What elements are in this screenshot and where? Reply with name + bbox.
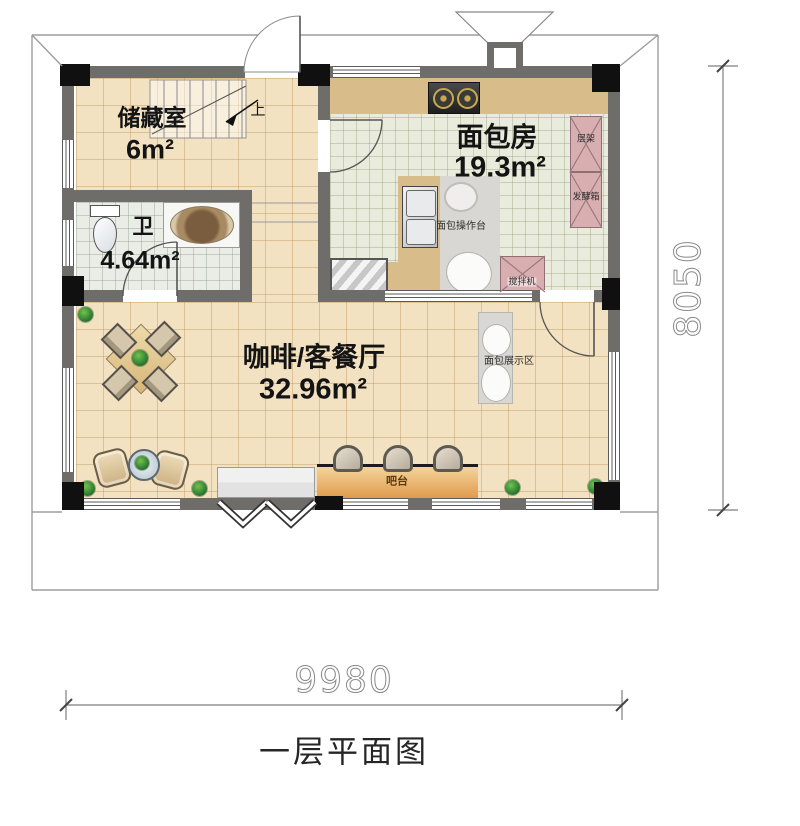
column-top-middle (298, 64, 330, 86)
door-opening-bakery-left (318, 120, 330, 172)
window-bottom-1 (84, 498, 180, 510)
wall-bakery-left-bottom (318, 172, 330, 302)
round-table-plant (135, 456, 149, 470)
room-name-bakery: 面包房 (457, 125, 538, 152)
window-left-storage (62, 140, 74, 188)
window-bottom-2 (343, 498, 408, 510)
room-area-bath: 4.64m² (100, 249, 179, 274)
window-top-bakery (333, 66, 420, 78)
bath-basin (170, 206, 234, 244)
door-opening-top-entrance (245, 66, 300, 78)
bar-stool-3 (433, 445, 463, 472)
plant-4 (505, 480, 520, 495)
plant-3 (192, 481, 207, 496)
dimension-height-label: 8050 (668, 238, 709, 338)
plan-title: 一层平面图 (259, 737, 429, 768)
toilet-tank (90, 205, 120, 217)
room-area-cafe: 32.96m² (259, 376, 367, 405)
mixer-label: 搅拌机 (507, 278, 536, 287)
window-left-cafe (62, 368, 74, 472)
display-bread-1 (482, 324, 511, 356)
column-left-middle (62, 276, 84, 306)
dimension-width-label: 9980 (294, 660, 394, 701)
door-opening-bath (123, 290, 177, 302)
wall-storage-bath-divider (62, 190, 252, 202)
wall-bakery-south-l (318, 290, 385, 302)
room-name-cafe: 咖啡/客餐厅 (243, 345, 386, 372)
wall-bath-south-r (177, 290, 252, 302)
window-bottom-4 (526, 498, 592, 510)
worktable-label: 面包操作台 (436, 222, 486, 232)
wall-bath-right (240, 190, 252, 302)
bar-label: 吧台 (386, 477, 408, 488)
proofing-box-label: 发酵箱 (572, 193, 599, 202)
bread-display-label: 面包展示区 (484, 357, 534, 367)
room-name-bath: 卫 (133, 217, 154, 238)
column-bottom-right (594, 482, 620, 510)
window-bakery-interior (385, 290, 532, 302)
stove-burner-left (433, 88, 454, 109)
bar-stool-1 (333, 445, 363, 472)
column-top-right (592, 64, 620, 92)
room-area-storage: 6m² (126, 137, 174, 164)
door-opening-bakery-cafe (540, 290, 594, 302)
column-right-middle (602, 278, 620, 310)
shelf-rack-cabinet (570, 116, 602, 172)
entry-mat (217, 467, 315, 498)
sink-bowl-bottom (406, 219, 436, 245)
table-plant (132, 350, 148, 366)
bar-stool-2 (383, 445, 413, 472)
room-area-bakery: 19.3m² (454, 154, 546, 183)
window-left-bath (62, 220, 74, 266)
window-right-cafe (608, 352, 620, 480)
stove-burner-right (457, 88, 478, 109)
column-bottom-middle (315, 496, 343, 510)
stairs-up-label: 上 (250, 103, 265, 118)
mixer-unit (500, 256, 545, 292)
sink-bowl-top (406, 190, 436, 217)
window-bottom-3 (432, 498, 500, 510)
plant-1 (78, 307, 93, 322)
wall-bakery-south-m (532, 290, 540, 302)
floor-plan: 9980 8050 储藏室 6m² 卫 4.64m² 面包房 19.3m² 咖啡… (0, 0, 800, 826)
display-bread-2 (481, 364, 511, 402)
room-name-storage: 储藏室 (118, 107, 187, 130)
shelf-rack-label: 层架 (577, 135, 595, 144)
column-top-left (60, 64, 90, 86)
column-bottom-left (62, 482, 84, 510)
worktable-plate (444, 182, 478, 212)
